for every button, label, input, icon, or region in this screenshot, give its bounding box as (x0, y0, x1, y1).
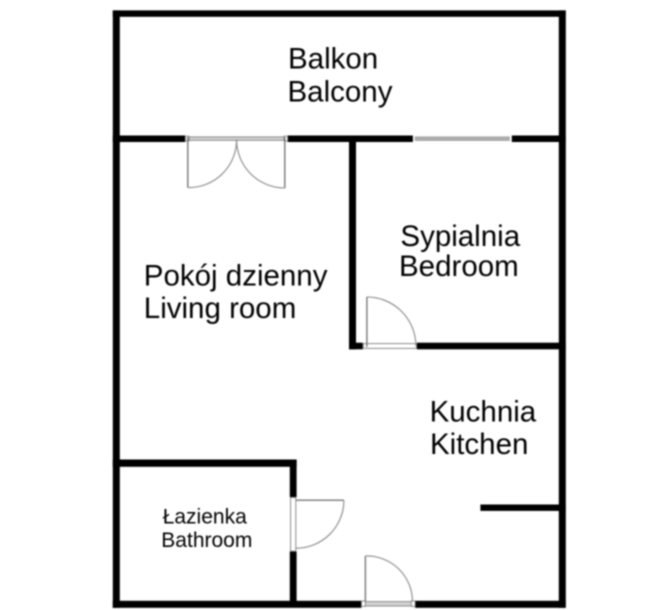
svg-text:Kuchnia: Kuchnia (430, 396, 537, 429)
svg-text:Łazienka: Łazienka (163, 506, 247, 529)
svg-text:Balkon: Balkon (288, 42, 378, 75)
svg-text:Balcony: Balcony (288, 75, 393, 108)
svg-text:Bathroom: Bathroom (161, 529, 252, 552)
svg-text:Bedroom: Bedroom (399, 250, 519, 283)
svg-text:Kitchen: Kitchen (430, 428, 528, 461)
svg-text:Living room: Living room (144, 292, 296, 325)
svg-text:Sypialnia: Sypialnia (400, 220, 520, 253)
svg-text:Pokój dzienny: Pokój dzienny (144, 259, 328, 292)
